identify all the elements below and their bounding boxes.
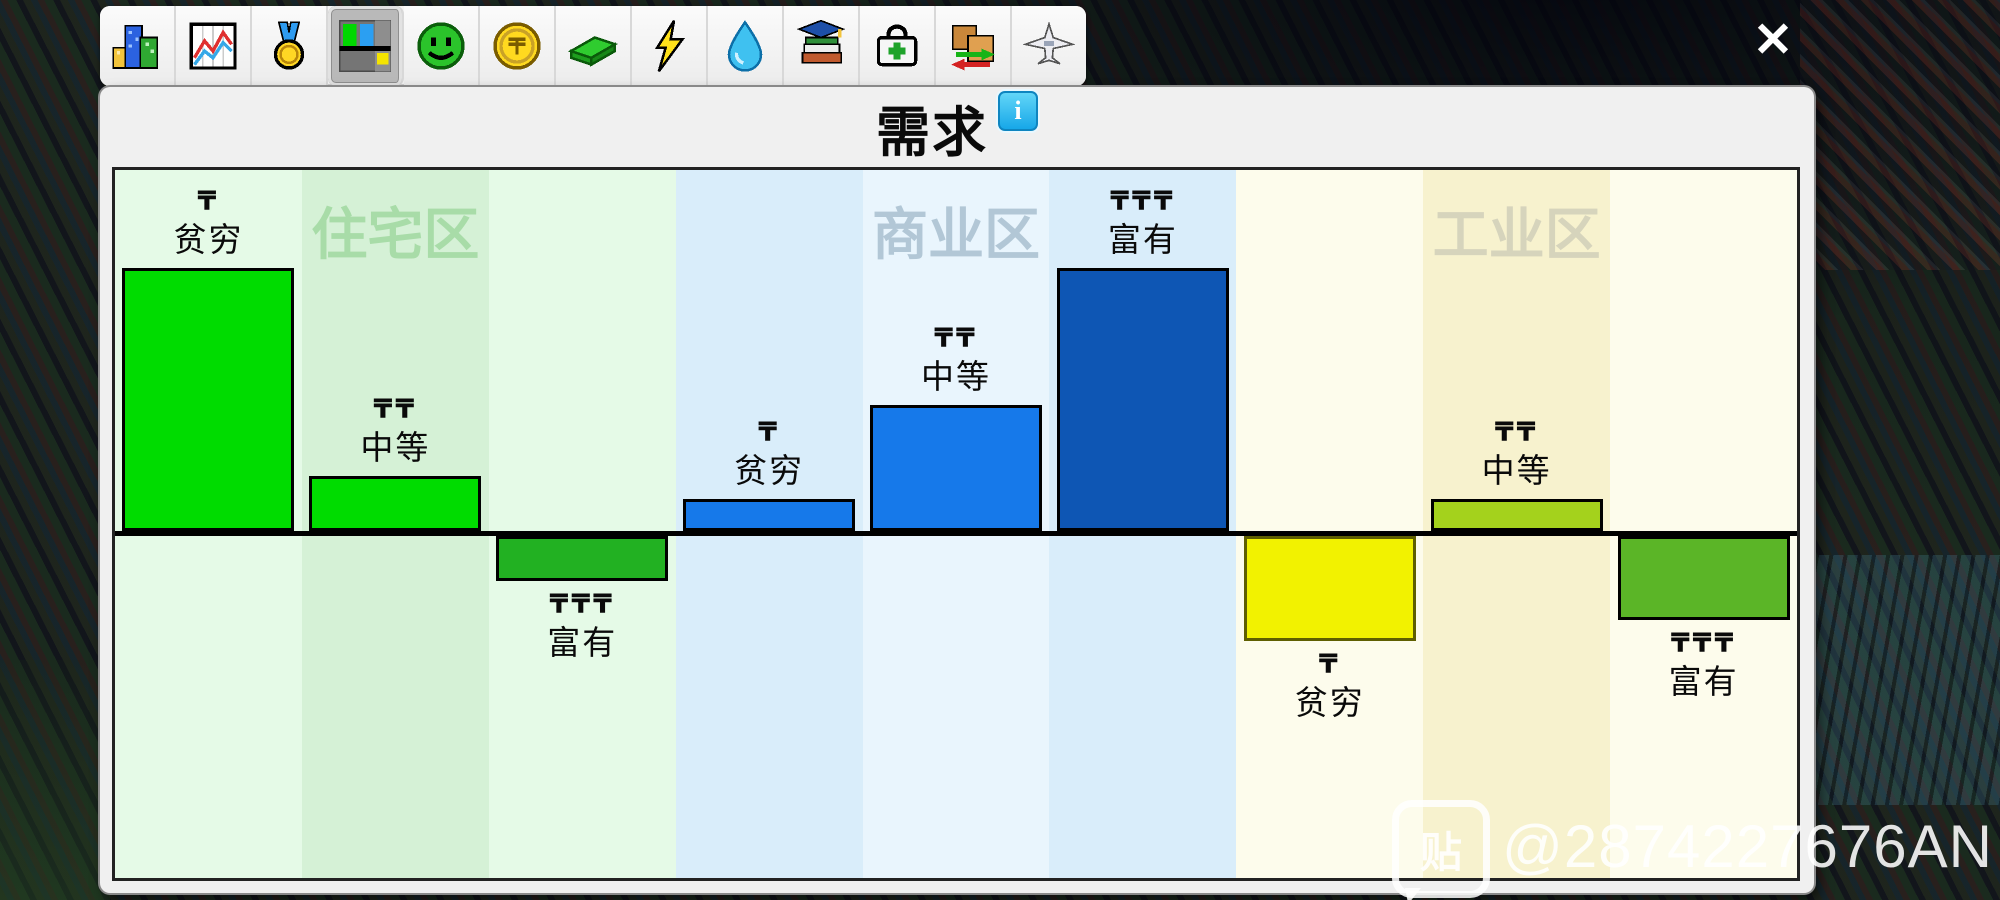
toolbar-tab-rating-medal[interactable] — [252, 6, 328, 86]
bar-label: ₸₸中等 — [844, 325, 1068, 393]
demand-bar — [309, 476, 481, 531]
electricity-icon — [642, 19, 696, 73]
demand-bar — [1244, 536, 1416, 641]
wealth-level-label: 富有 — [1031, 223, 1255, 256]
wealth-currency-marks: ₸₸₸ — [1031, 188, 1255, 215]
toolbar-tab-budget-cash[interactable] — [556, 6, 632, 86]
demand-bar — [1057, 268, 1229, 531]
background-hill — [0, 660, 110, 900]
zone-label: 住宅区 — [302, 190, 489, 271]
bar-label: ₸贫穷 — [96, 188, 320, 256]
toolbar-tab-money-coin[interactable] — [480, 6, 556, 86]
dialog-header: 需求 i — [100, 87, 1814, 167]
close-button[interactable]: ✕ — [1742, 10, 1804, 72]
zone-label: 商业区 — [863, 190, 1050, 271]
toolbar-tab-happiness[interactable] — [404, 6, 480, 86]
chart-column: ₸贫穷 — [1236, 170, 1423, 878]
wealth-currency-marks: ₸ — [1218, 651, 1442, 678]
zone-label: 工业区 — [1423, 190, 1610, 271]
chart-column: 工业区₸₸中等 — [1423, 170, 1610, 878]
wealth-currency-marks: ₸₸ — [1405, 419, 1629, 446]
demand-bar — [496, 536, 668, 581]
toolbar-tab-education[interactable] — [784, 6, 860, 86]
budget-cash-icon — [566, 19, 620, 73]
trade-icon — [946, 19, 1000, 73]
toolbar-tab-water[interactable] — [708, 6, 784, 86]
toolbar-tab-demand[interactable] — [328, 6, 404, 86]
wealth-currency-marks: ₸ — [96, 188, 320, 215]
background-solar-panels — [1805, 555, 2000, 805]
toolbar-tab-trade[interactable] — [936, 6, 1012, 86]
wealth-level-label: 中等 — [844, 360, 1068, 393]
health-icon — [870, 19, 924, 73]
statistics-icon — [186, 19, 240, 73]
bar-label: ₸₸₸富有 — [1031, 188, 1255, 256]
demand-chart: ₸贫穷住宅区₸₸中等₸₸₸富有₸贫穷商业区₸₸中等₸₸₸富有₸贫穷工业区₸₸中等… — [112, 167, 1800, 881]
toolbar-tab-airport[interactable] — [1012, 6, 1086, 86]
wealth-level-label: 贫穷 — [96, 223, 320, 256]
happiness-icon — [414, 19, 468, 73]
chart-column: 商业区₸₸中等 — [863, 170, 1050, 878]
chart-column: ₸₸₸富有 — [489, 170, 676, 878]
bar-label: ₸₸中等 — [1405, 419, 1629, 487]
toolbar-tab-health[interactable] — [860, 6, 936, 86]
demand-bar — [1431, 499, 1603, 531]
wealth-level-label: 中等 — [1405, 454, 1629, 487]
demand-dialog: 需求 i ₸贫穷住宅区₸₸中等₸₸₸富有₸贫穷商业区₸₸中等₸₸₸富有₸贫穷工业… — [100, 87, 1814, 893]
info-icon[interactable]: i — [998, 91, 1038, 131]
wealth-currency-marks: ₸₸ — [283, 396, 507, 423]
education-icon — [794, 19, 848, 73]
toolbar-tab-city[interactable] — [100, 6, 176, 86]
wealth-currency-marks: ₸₸₸ — [470, 591, 694, 618]
water-icon — [718, 19, 772, 73]
city-icon — [110, 19, 164, 73]
wealth-level-label: 富有 — [1591, 665, 1815, 698]
rating-medal-icon — [262, 19, 316, 73]
toolbar-tab-statistics[interactable] — [176, 6, 252, 86]
demand-bar — [122, 268, 294, 531]
wealth-level-label: 中等 — [283, 431, 507, 464]
zero-baseline — [115, 531, 1797, 536]
chart-column: ₸贫穷 — [676, 170, 863, 878]
bar-label: ₸₸₸富有 — [1591, 630, 1815, 698]
airport-icon — [1022, 19, 1076, 73]
bar-label: ₸贫穷 — [657, 419, 881, 487]
wealth-currency-marks: ₸ — [657, 419, 881, 446]
demand-bar — [870, 405, 1042, 531]
wealth-currency-marks: ₸₸ — [844, 325, 1068, 352]
chart-column: ₸贫穷 — [115, 170, 302, 878]
demand-bar — [683, 499, 855, 531]
chart-column: ₸₸₸富有 — [1049, 170, 1236, 878]
background-city-roofs — [1800, 0, 2000, 270]
stats-toolbar — [100, 6, 1086, 86]
wealth-level-label: 富有 — [470, 626, 694, 659]
game-screen: ✕ 需求 i ₸贫穷住宅区₸₸中等₸₸₸富有₸贫穷商业区₸₸中等₸₸₸富有₸贫穷… — [0, 0, 2000, 900]
chart-column: 住宅区₸₸中等 — [302, 170, 489, 878]
bar-label: ₸贫穷 — [1218, 651, 1442, 719]
bar-label: ₸₸₸富有 — [470, 591, 694, 659]
wealth-level-label: 贫穷 — [657, 454, 881, 487]
dialog-title: 需求 — [876, 88, 988, 167]
wealth-currency-marks: ₸₸₸ — [1591, 630, 1815, 657]
money-coin-icon — [490, 19, 544, 73]
demand-bar — [1618, 536, 1790, 620]
bar-label: ₸₸中等 — [283, 396, 507, 464]
chart-column: ₸₸₸富有 — [1610, 170, 1797, 878]
toolbar-tab-electricity[interactable] — [632, 6, 708, 86]
wealth-level-label: 贫穷 — [1218, 686, 1442, 719]
demand-icon — [338, 19, 392, 73]
